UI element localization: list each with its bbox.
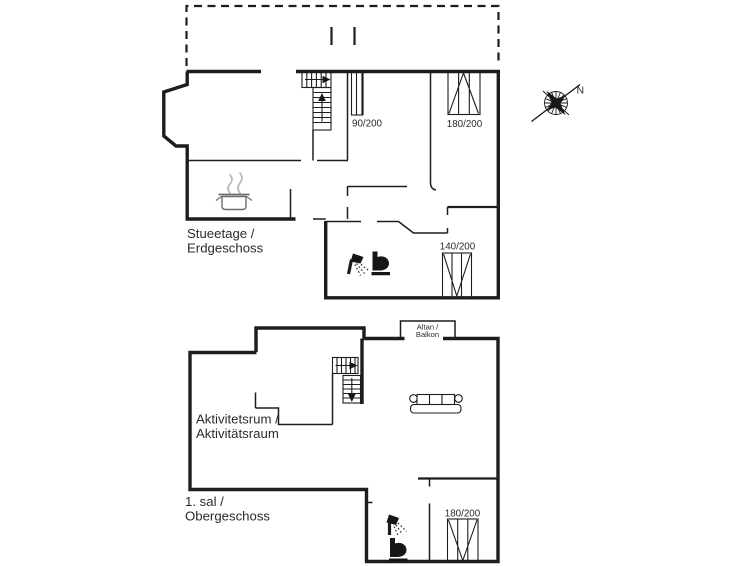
compass-rose-icon: N bbox=[532, 83, 585, 122]
stair-arrow-head bbox=[350, 362, 358, 369]
cooking-pot-icon bbox=[216, 173, 252, 210]
first-floor-plan: Altan / Balkon bbox=[185, 321, 498, 562]
toilet-icon bbox=[372, 252, 391, 276]
window-90x200: 90/200 bbox=[352, 72, 383, 130]
window-140x200: 140/200 bbox=[440, 242, 476, 298]
staircase-icon bbox=[333, 358, 361, 404]
window-size-label: 180/200 bbox=[447, 119, 483, 130]
window-180x200: 180/200 bbox=[447, 72, 483, 131]
first-floor-label-line1: 1. sal / bbox=[185, 494, 224, 509]
shower-icon bbox=[387, 515, 407, 537]
steam-lines bbox=[228, 173, 242, 193]
ground-floor-label-line2: Erdgeschoss bbox=[187, 241, 264, 256]
window-size-label: 90/200 bbox=[352, 119, 383, 130]
roof-overhang-dashed-outline bbox=[187, 6, 499, 66]
activity-room-label-line1: Aktivitetsrum / bbox=[196, 412, 279, 427]
exterior-wall-top bbox=[256, 328, 405, 352]
staircase-icon bbox=[302, 72, 331, 131]
balcony: Altan / Balkon bbox=[401, 321, 456, 339]
pot-body bbox=[222, 197, 246, 210]
ground-floor-label-line1: Stueetage / bbox=[187, 226, 255, 241]
window-180x200: 180/200 bbox=[445, 509, 481, 562]
window-size-label: 140/200 bbox=[440, 242, 476, 253]
sofa-cushions bbox=[417, 395, 455, 405]
sofa-icon bbox=[410, 395, 463, 414]
north-label: N bbox=[577, 85, 585, 97]
first-floor-label-line2: Obergeschoss bbox=[185, 509, 270, 524]
floorplan-svg: 90/200 180/200 140/200 bbox=[0, 0, 755, 566]
activity-room-label-line2: Aktivitätsraum bbox=[196, 426, 279, 441]
floorplan-canvas: 90/200 180/200 140/200 bbox=[0, 0, 755, 566]
toilet-icon bbox=[389, 538, 408, 562]
exterior-wall-right-section bbox=[296, 72, 498, 298]
sofa-armrest bbox=[455, 395, 463, 403]
window-size-label: 180/200 bbox=[445, 509, 481, 520]
interior-walls bbox=[256, 339, 499, 562]
shower-icon bbox=[349, 254, 369, 276]
sofa-armrest bbox=[410, 395, 418, 403]
chimney-vent-marks bbox=[332, 27, 355, 45]
sofa-seat bbox=[411, 405, 462, 414]
ground-floor-plan: 90/200 180/200 140/200 bbox=[164, 6, 499, 298]
balcony-label-line2: Balkon bbox=[416, 330, 439, 339]
